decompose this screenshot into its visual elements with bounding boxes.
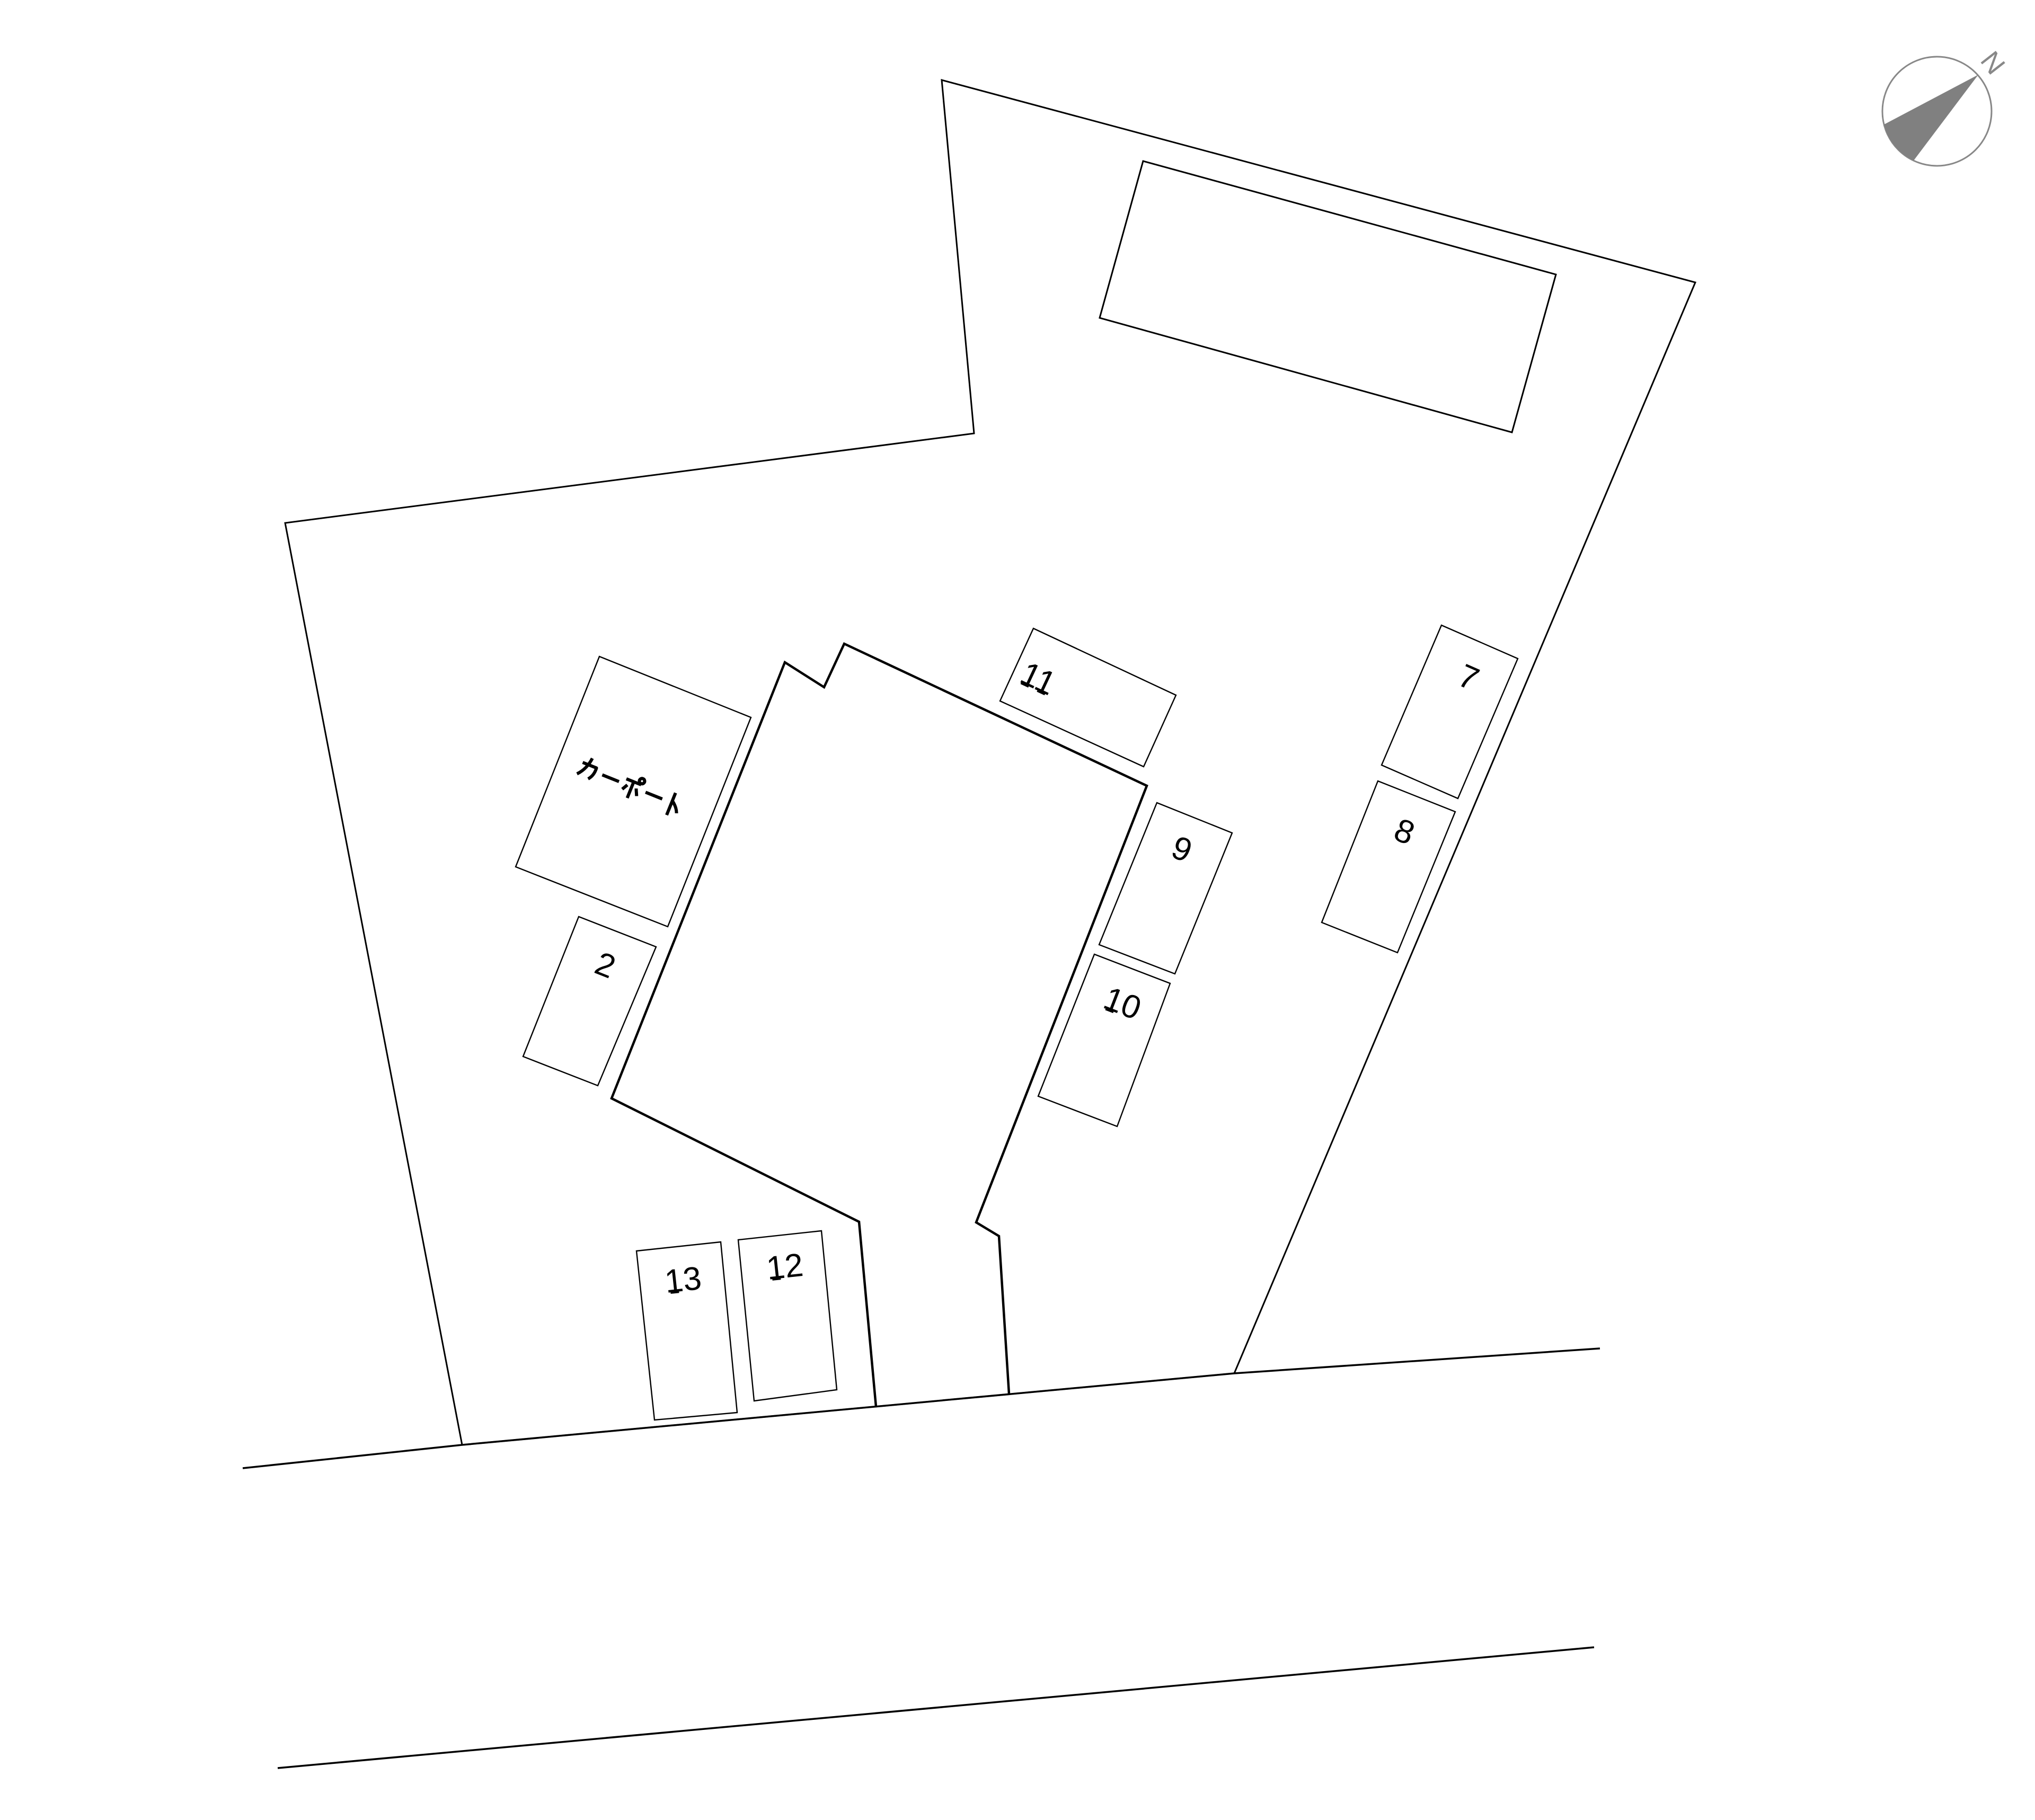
svg-text:12: 12	[765, 1247, 805, 1287]
svg-text:13: 13	[663, 1260, 703, 1300]
